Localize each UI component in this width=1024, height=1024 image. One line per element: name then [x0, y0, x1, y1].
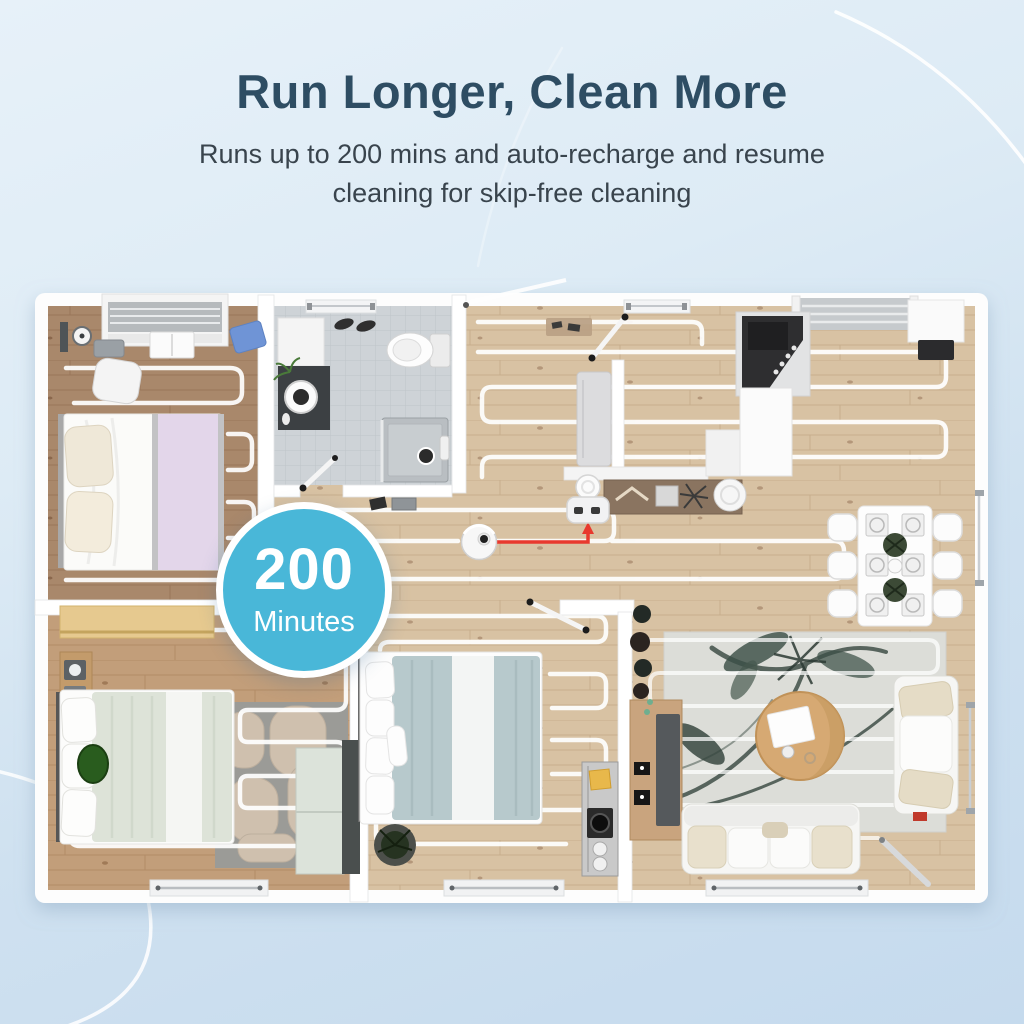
- kitchen-island: [740, 388, 792, 476]
- robot-vacuum-icon: [460, 525, 498, 564]
- subtitle-line-2: cleaning for skip-free cleaning: [333, 178, 692, 208]
- bed-2: [56, 690, 234, 844]
- chair: [91, 357, 143, 406]
- bed-1: [58, 414, 224, 570]
- window-top-bath: [306, 300, 376, 313]
- shower: [382, 418, 449, 482]
- page-title: Run Longer, Clean More: [0, 64, 1024, 119]
- remote: [913, 812, 927, 821]
- product-banner: Run Longer, Clean More Runs up to 200 mi…: [0, 0, 1024, 1024]
- sticky-note: [589, 769, 611, 790]
- runtime-unit: Minutes: [253, 606, 355, 639]
- page-subtitle: Runs up to 200 mins and auto-recharge an…: [0, 135, 1024, 213]
- sofa: [682, 804, 860, 874]
- runtime-value: 200: [254, 541, 354, 599]
- coffee-table: [756, 692, 844, 780]
- console-table: [604, 479, 746, 514]
- sink-black: [918, 340, 954, 360]
- bed-3: [358, 652, 542, 824]
- sliding-doors-bottom: [150, 880, 868, 896]
- tv-console: [630, 700, 682, 840]
- toilet: [387, 333, 450, 367]
- green-cabinet: [296, 740, 360, 874]
- potted-plant: [374, 824, 416, 866]
- runtime-badge: 200 Minutes: [216, 502, 392, 678]
- subtitle-line-1: Runs up to 200 mins and auto-recharge an…: [199, 139, 825, 169]
- appliance-column: [582, 762, 618, 876]
- dining-set: [828, 506, 962, 626]
- armchair: [894, 676, 958, 814]
- header: Run Longer, Clean More Runs up to 200 mi…: [0, 64, 1024, 213]
- plant-on-bed: [78, 745, 108, 783]
- window-top-hall: [624, 300, 690, 313]
